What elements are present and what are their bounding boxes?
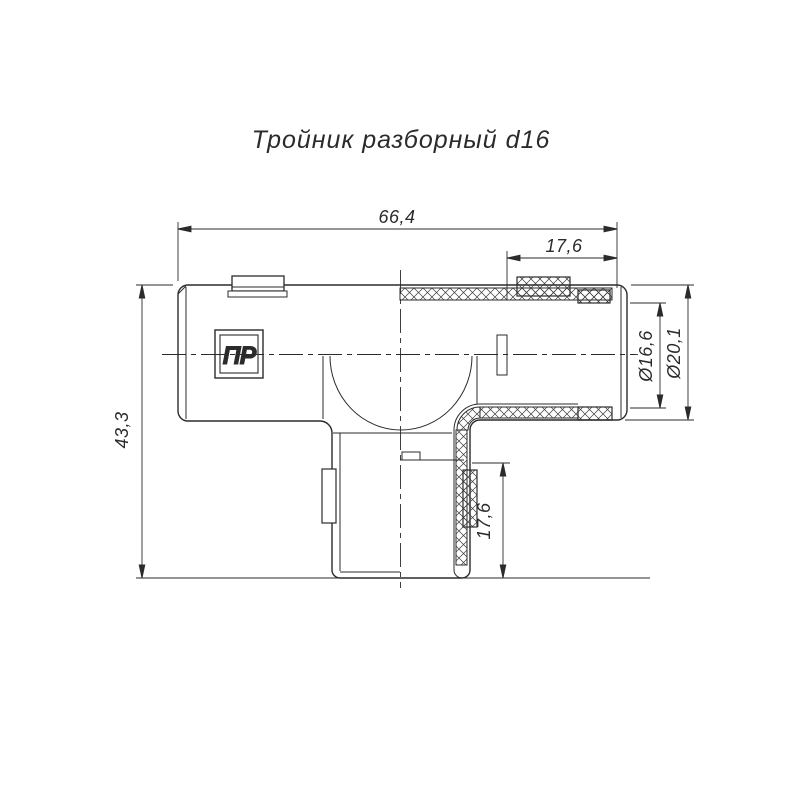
pipe-hatch-bottom-strip [480,407,578,418]
brand-logo-box: ПР [215,330,263,378]
part-outline [178,285,627,578]
arrowhead [604,226,617,232]
pipe-hatch-top-block [517,277,570,296]
arrowhead [507,255,520,261]
arrowhead [139,285,145,298]
arrowhead [178,226,191,232]
latch-tab-side [322,469,336,523]
brand-logo-text: ПР [223,342,257,370]
latch-tab-top [228,276,287,297]
drawing-title: Тройник разборный d16 [252,126,551,154]
arrowhead [500,565,506,578]
dimension-text-inner-diameter: Ø16,6 [636,330,656,383]
arrowhead [657,303,663,316]
arrowhead [500,463,506,476]
pipe-hatch-bottom-end-block [578,407,612,420]
dimension-text-right-port-depth: 17,6 [545,236,583,256]
arrowhead [604,255,617,261]
latch-tab-top-flange [228,291,287,297]
drawing-sheet: ПР [0,0,800,800]
inspection-window [497,335,507,375]
dimension-text-bottom-port-depth: 17,6 [474,502,494,540]
arrowhead [685,407,691,420]
arrowhead [685,285,691,298]
arrowhead [139,565,145,578]
arrowhead [657,395,663,408]
latch-tab-top-upper [232,276,284,291]
dimension-text-overall-height: 43,3 [112,411,132,448]
dimension-text-overall-width: 66,4 [378,207,415,227]
technical-drawing: ПР [0,0,800,800]
detent-tab [402,452,420,460]
pipe-hatch-top-end-block [578,290,610,303]
dimension-text-outer-diameter: Ø20,1 [664,327,684,380]
